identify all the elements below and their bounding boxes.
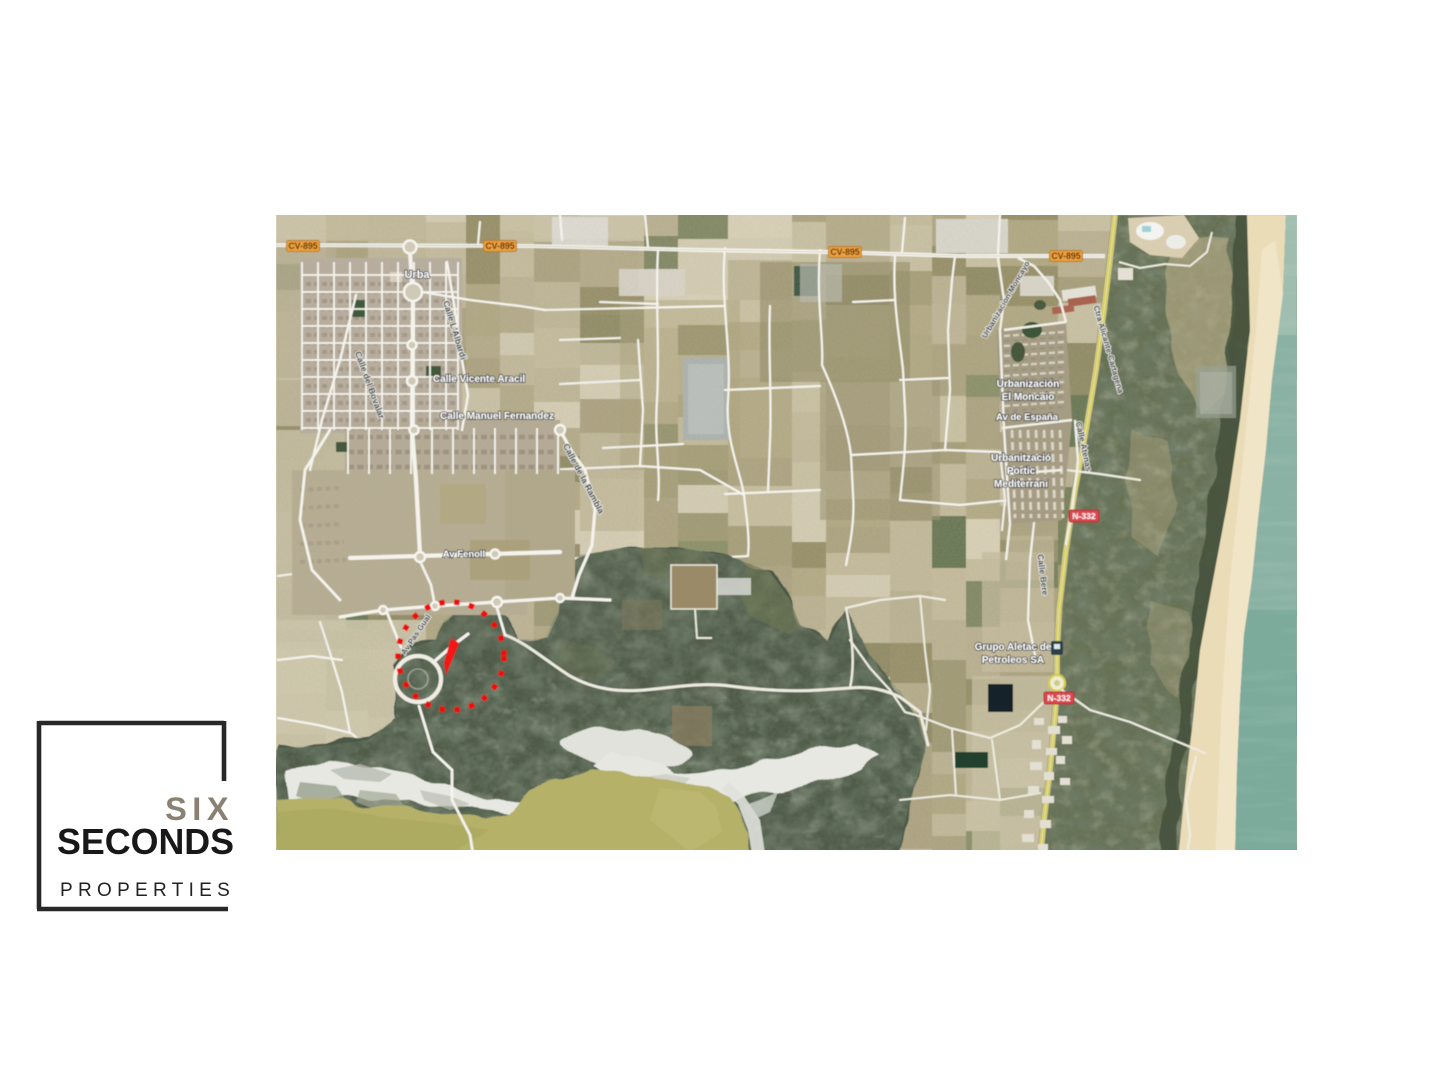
svg-text:Portic: Portic — [1007, 466, 1036, 477]
svg-text:Av de España: Av de España — [996, 412, 1059, 423]
svg-text:CV-895: CV-895 — [1051, 251, 1080, 261]
svg-text:CV-895: CV-895 — [830, 247, 859, 257]
svg-text:Urbanització: Urbanització — [991, 453, 1051, 464]
svg-text:Calle Manuel Fernandez: Calle Manuel Fernandez — [440, 411, 554, 422]
svg-text:Av Fenoll: Av Fenoll — [443, 549, 485, 560]
svg-text:Urbanización: Urbanización — [997, 379, 1060, 390]
svg-text:Grupo Aletac de: Grupo Aletac de — [975, 642, 1052, 653]
svg-text:SECONDS: SECONDS — [57, 822, 234, 862]
svg-text:PROPERTIES: PROPERTIES — [60, 880, 235, 901]
svg-text:CV-895: CV-895 — [288, 241, 317, 251]
svg-text:Mediterrani: Mediterrani — [994, 479, 1048, 490]
svg-text:El Moncaio: El Moncaio — [1002, 392, 1055, 403]
svg-text:N-332: N-332 — [1047, 693, 1071, 703]
svg-text:N-332: N-332 — [1072, 511, 1096, 521]
svg-text:CV-895: CV-895 — [485, 241, 514, 251]
svg-text:Calle Vicente Aracil: Calle Vicente Aracil — [433, 374, 525, 385]
svg-text:Urba: Urba — [404, 269, 430, 281]
svg-text:Petroleos SA: Petroleos SA — [982, 655, 1044, 666]
